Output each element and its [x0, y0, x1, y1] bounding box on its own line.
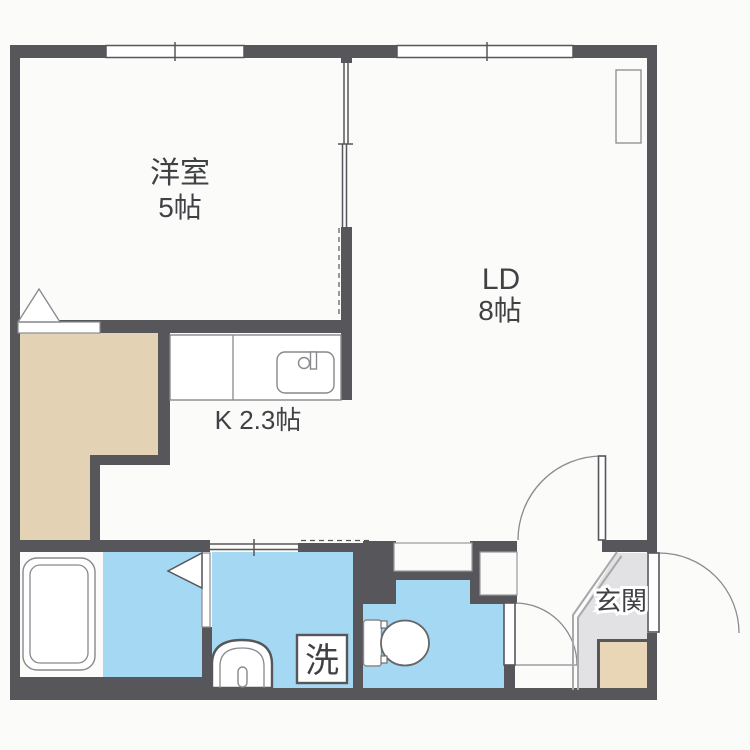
label-washer: 洗	[305, 642, 339, 680]
wall-right-lower	[647, 633, 657, 690]
front-door	[648, 553, 739, 633]
wall-closet-right	[158, 333, 170, 465]
toilet	[364, 620, 430, 666]
wall-mid-left	[10, 540, 210, 552]
wall-left	[10, 45, 20, 700]
wall-closet-step-v	[90, 455, 100, 552]
wall-right-upper	[647, 45, 657, 553]
wall-bath-bottom	[10, 677, 210, 690]
wall-washroom-left-stub	[202, 627, 212, 690]
closet-floor	[20, 333, 158, 540]
pipe-space-ld	[616, 70, 641, 143]
label-living-dining: LD	[482, 263, 520, 296]
wall-partition-stub	[341, 58, 352, 63]
label-western-room-size: 5帖	[158, 192, 202, 223]
wall-block-toilet-left	[363, 541, 396, 604]
shoe-storage	[600, 642, 647, 688]
wall-hall-left-lower	[504, 665, 515, 690]
label-entrance: 玄関	[595, 586, 647, 616]
pipe-space-hall	[480, 552, 517, 595]
label-western-room: 洋室	[150, 157, 210, 190]
toilet-door	[504, 603, 577, 665]
kitchen-counter	[170, 335, 341, 400]
bathtub	[23, 558, 95, 670]
washbasin	[212, 640, 272, 688]
wall-closet-step-h	[90, 455, 170, 465]
floor-plan-page: 洋室 5帖 LD 8帖 K 2.3帖 洗 玄関	[0, 0, 750, 750]
kitchen-faucet-lever	[311, 352, 317, 369]
window-living	[397, 42, 573, 61]
wall-shoebox-left	[597, 639, 600, 690]
wall-mid-right	[602, 540, 647, 552]
wall-toilet-left	[353, 552, 363, 690]
floor-plan: 洋室 5帖 LD 8帖 K 2.3帖 洗 玄関	[0, 0, 750, 750]
wall-kitchen-right	[341, 333, 352, 400]
wall-partition-lower	[341, 227, 352, 333]
ld-niche	[394, 543, 472, 571]
ld-door	[518, 456, 606, 540]
wall-niche-bottom	[394, 571, 472, 580]
closet-door	[18, 289, 100, 333]
wall-shoebox-top	[597, 639, 647, 642]
label-living-dining-size: 8帖	[478, 295, 522, 326]
window-bedroom	[106, 42, 244, 61]
label-kitchen: K 2.3帖	[215, 405, 302, 435]
kitchen-faucet	[299, 358, 310, 369]
